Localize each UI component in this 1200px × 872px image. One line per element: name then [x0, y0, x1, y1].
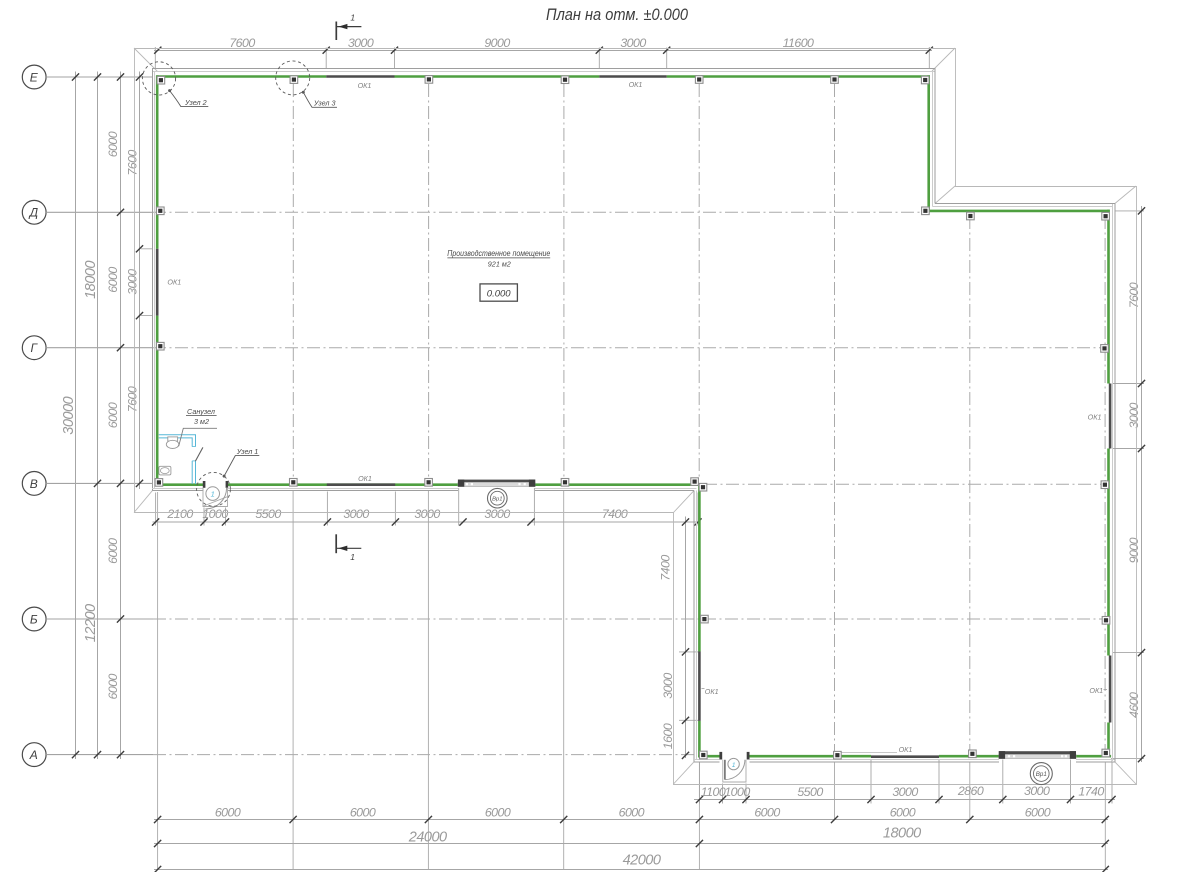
svg-text:Е: Е	[30, 70, 39, 84]
svg-text:ОК1: ОК1	[1088, 413, 1102, 422]
svg-text:6000: 6000	[890, 806, 916, 820]
svg-text:3000: 3000	[892, 785, 918, 799]
svg-text:3 м2: 3 м2	[194, 417, 209, 426]
svg-text:6000: 6000	[106, 673, 120, 699]
svg-text:Узел 3: Узел 3	[313, 99, 336, 108]
svg-text:6000: 6000	[754, 806, 780, 820]
svg-text:42000: 42000	[623, 853, 661, 869]
svg-text:1100: 1100	[701, 785, 726, 799]
svg-text:1: 1	[350, 12, 355, 22]
svg-text:Вр1: Вр1	[1036, 771, 1047, 778]
svg-text:11600: 11600	[783, 36, 814, 50]
svg-text:24000: 24000	[408, 830, 447, 846]
svg-text:7400: 7400	[602, 507, 628, 521]
svg-text:5500: 5500	[255, 507, 281, 521]
svg-text:12200: 12200	[83, 604, 99, 642]
svg-text:ОК1: ОК1	[899, 745, 913, 754]
svg-text:3000: 3000	[414, 507, 440, 521]
svg-text:0.000: 0.000	[487, 289, 511, 300]
svg-text:ОК1: ОК1	[358, 474, 372, 483]
svg-text:А: А	[29, 748, 38, 762]
svg-text:18000: 18000	[883, 826, 921, 842]
svg-text:3000: 3000	[348, 36, 374, 50]
svg-text:1600: 1600	[661, 723, 675, 749]
svg-text:9000: 9000	[1127, 537, 1141, 563]
svg-text:Узел 2: Узел 2	[184, 98, 207, 107]
svg-text:3000: 3000	[484, 507, 510, 521]
svg-text:6000: 6000	[485, 806, 511, 820]
svg-text:3000: 3000	[620, 36, 646, 50]
svg-text:6000: 6000	[1025, 806, 1051, 820]
svg-text:4600: 4600	[1127, 692, 1141, 718]
svg-text:1000: 1000	[724, 785, 750, 799]
svg-text:7600: 7600	[126, 150, 140, 176]
svg-text:ОК1: ОК1	[705, 687, 719, 696]
svg-text:6000: 6000	[106, 402, 120, 428]
svg-text:Производственное помещение: Производственное помещение	[447, 249, 550, 258]
svg-text:9000: 9000	[484, 36, 510, 50]
svg-text:Б: Б	[30, 612, 38, 626]
svg-text:ОК1: ОК1	[1089, 686, 1103, 695]
svg-text:7600: 7600	[126, 386, 140, 412]
svg-text:6000: 6000	[619, 806, 645, 820]
svg-text:Д: Д	[28, 206, 39, 220]
svg-text:5500: 5500	[797, 785, 823, 799]
svg-text:1: 1	[211, 490, 215, 499]
svg-text:30000: 30000	[61, 396, 77, 434]
svg-text:1: 1	[350, 552, 355, 562]
svg-text:7600: 7600	[1127, 282, 1141, 308]
svg-text:7400: 7400	[659, 555, 673, 581]
svg-text:921 м2: 921 м2	[488, 259, 512, 268]
svg-text:ОК1: ОК1	[167, 278, 181, 287]
svg-text:6000: 6000	[106, 131, 120, 157]
svg-text:Вр1: Вр1	[492, 496, 502, 502]
svg-text:План на отм. ±0.000: План на отм. ±0.000	[546, 5, 689, 24]
svg-text:7600: 7600	[229, 36, 255, 50]
svg-text:1: 1	[732, 762, 736, 769]
svg-text:2860: 2860	[957, 784, 984, 798]
svg-text:В: В	[30, 477, 38, 491]
svg-text:18000: 18000	[83, 261, 99, 299]
svg-text:ОК1: ОК1	[358, 81, 372, 90]
svg-text:3000: 3000	[1127, 402, 1141, 428]
svg-text:6000: 6000	[106, 538, 120, 564]
svg-text:1740: 1740	[1078, 785, 1104, 799]
svg-text:3000: 3000	[661, 673, 675, 699]
svg-text:6000: 6000	[350, 806, 376, 820]
svg-text:3000: 3000	[126, 269, 140, 295]
svg-text:Узел 1: Узел 1	[236, 447, 259, 456]
svg-text:ОК1: ОК1	[629, 80, 643, 89]
svg-text:3000: 3000	[343, 507, 369, 521]
svg-text:Санузел: Санузел	[187, 407, 215, 416]
svg-text:6000: 6000	[215, 806, 241, 820]
svg-text:3000: 3000	[1024, 784, 1050, 798]
svg-text:6000: 6000	[106, 267, 120, 293]
svg-text:2100: 2100	[166, 507, 193, 521]
